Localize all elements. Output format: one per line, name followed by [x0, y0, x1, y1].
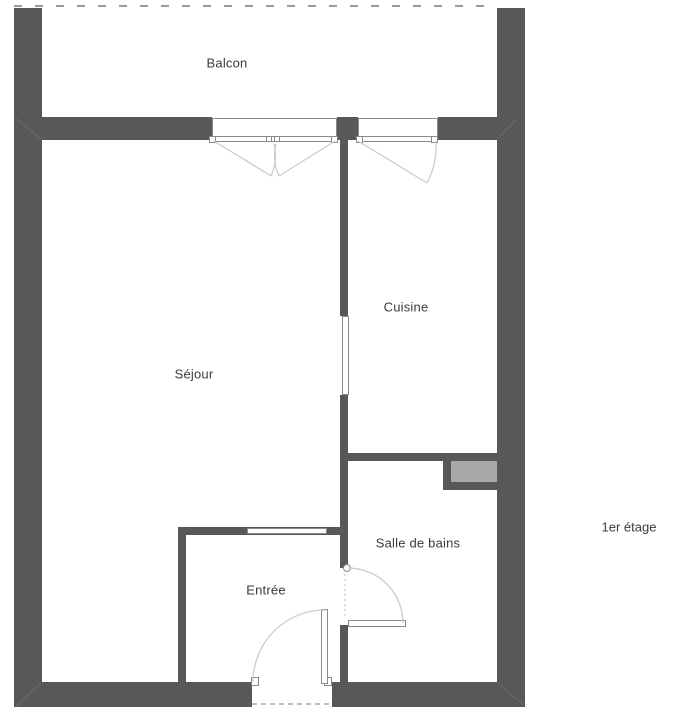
bathroom-door-swing-arc: [348, 568, 403, 623]
hinge-marker: [431, 136, 438, 143]
room-label-sejour: Séjour: [175, 367, 214, 382]
sejour-french-door-right-leaf-line: [279, 141, 335, 176]
hinge-marker: [209, 136, 216, 143]
wall-cuisine-bottom: [340, 453, 497, 461]
room-label-balcon: Balcon: [207, 56, 248, 71]
wall-entree-bains-lower: [340, 625, 348, 682]
floor-plan: Balcon Séjour Cuisine Salle de bains Ent…: [0, 0, 690, 721]
cuisine-door-swing-arc: [427, 141, 436, 183]
hinge-marker: [331, 136, 338, 143]
cuisine-door-leaf-line: [358, 141, 427, 183]
duct-shaft: [451, 461, 497, 482]
cuisine-window: [358, 118, 438, 137]
bathroom-door-hinge-marker: [343, 564, 351, 572]
entree-transom-window: [247, 528, 327, 534]
floor-level-label: 1er étage: [602, 520, 657, 535]
room-label-salle-de-bains: Salle de bains: [376, 536, 460, 551]
sejour-cuisine-sliding-panel: [342, 316, 349, 395]
entry-door-jamb-left: [251, 677, 259, 686]
sejour-french-door-left-leaf-line: [214, 141, 271, 176]
sejour-french-door-right-swing-arc: [275, 144, 279, 176]
wall-bottom-left: [14, 682, 252, 707]
entry-door-leaf: [321, 609, 328, 684]
wall-balcony-front-left: [14, 117, 212, 140]
bathroom-door-leaf: [348, 620, 406, 627]
hinge-marker: [266, 136, 272, 142]
cuisine-window-sill: [360, 136, 436, 142]
wall-balcony-front-right: [438, 117, 525, 140]
wall-entree-left: [178, 527, 186, 682]
sejour-french-window: [212, 118, 337, 137]
wall-balcony-front-middle: [337, 117, 358, 140]
wall-right: [497, 8, 525, 707]
wall-bottom-right: [332, 682, 525, 707]
room-label-cuisine: Cuisine: [384, 300, 429, 315]
duct-border-bottom: [443, 482, 497, 490]
room-label-entree: Entrée: [246, 583, 286, 598]
entry-door-swing-arc: [253, 610, 325, 682]
wall-sejour-cuisine-upper: [340, 140, 348, 316]
wall-sejour-cuisine-lower: [340, 395, 348, 568]
hinge-marker: [274, 136, 280, 142]
hinge-marker: [356, 136, 363, 143]
wall-left: [14, 8, 42, 707]
sejour-french-door-left-swing-arc: [271, 144, 275, 176]
